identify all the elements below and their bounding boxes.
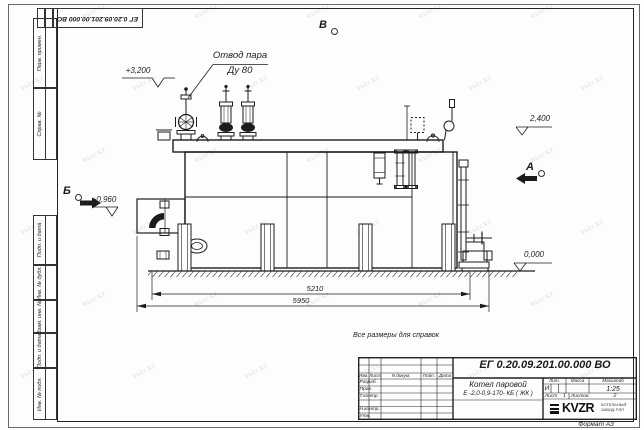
steam-outlet-callout-line2: Ду 80 bbox=[205, 66, 275, 76]
feed-pump-unit bbox=[459, 242, 492, 271]
mass-label: Масса bbox=[566, 379, 589, 384]
ground-line bbox=[148, 271, 535, 277]
sheet-label: Лист bbox=[545, 394, 557, 399]
col-data: Дата bbox=[437, 374, 453, 379]
title-block: Изм. Лист N докум. Подп. Дата Разраб. Пр… bbox=[358, 357, 637, 420]
elevation-3200: +3,200 bbox=[118, 67, 158, 76]
row-razrab: Разраб. bbox=[360, 380, 377, 385]
safety-valve bbox=[218, 85, 234, 140]
steam-outlet-callout-line1: Отвод пара bbox=[205, 51, 275, 61]
col-izm: Изм. bbox=[358, 374, 369, 379]
doc-number: ЕГ 0.20.09.201.00.000 ВО bbox=[453, 360, 637, 372]
view-label-b: Б bbox=[63, 185, 71, 197]
kvzr-logo: KVZR bbox=[562, 402, 594, 415]
scale-label: Масштаб bbox=[589, 379, 637, 384]
drum-fittings bbox=[197, 100, 455, 189]
drawing-sheet: kvzr.kzkvzr.kzkvzr.kzkvzr.kzkvzr.kzkvzr.… bbox=[0, 0, 644, 430]
lit-value: И bbox=[543, 386, 551, 393]
steam-valve bbox=[176, 87, 197, 140]
col-list: Лист bbox=[369, 374, 381, 379]
row-tkontr: Т.контр. bbox=[360, 394, 379, 399]
sheets-value: 2 bbox=[608, 394, 622, 399]
lit-label: Лит. bbox=[543, 379, 566, 384]
dimension-5950: 5950 bbox=[276, 297, 326, 305]
sheets-label: Листов bbox=[571, 394, 588, 399]
kvzr-logo-bars-icon bbox=[550, 404, 559, 415]
row-utv: Утв. bbox=[360, 414, 371, 419]
view-arrows bbox=[80, 173, 537, 209]
view-label-v: В bbox=[319, 19, 327, 31]
view-symbol-v bbox=[331, 28, 338, 35]
dimension-5210: 5210 bbox=[290, 285, 340, 293]
rear-piping bbox=[458, 160, 492, 260]
product-name-line1: Котел паровой bbox=[453, 381, 543, 389]
boiler-body bbox=[156, 130, 457, 268]
view-symbol-a bbox=[538, 170, 545, 177]
company-name-line2: ЗАВОД РЭП bbox=[601, 408, 624, 412]
elevation-0960: +0,960 bbox=[86, 196, 122, 205]
format-label: Формат А3 bbox=[556, 421, 636, 428]
col-podp: Подп. bbox=[421, 374, 437, 379]
row-nkontr: Н.контр. bbox=[360, 407, 380, 412]
product-name-line2: Е -2,0-0,9-170- КБ ( ЖК ) bbox=[453, 391, 543, 398]
view-symbol-b bbox=[75, 194, 82, 201]
scale-value: 1:25 bbox=[589, 386, 637, 393]
safety-valve bbox=[240, 85, 256, 140]
sheet-value: 1 bbox=[560, 394, 569, 399]
col-ndoc: N докум. bbox=[381, 374, 421, 379]
support-legs bbox=[178, 224, 455, 271]
reference-note: Все размеры для справок bbox=[353, 331, 439, 339]
row-prov: Пров. bbox=[360, 387, 373, 392]
elevation-0000: 0,000 bbox=[516, 251, 552, 260]
elevation-2400: 2,400 bbox=[520, 115, 560, 124]
view-label-a: А bbox=[526, 161, 534, 173]
